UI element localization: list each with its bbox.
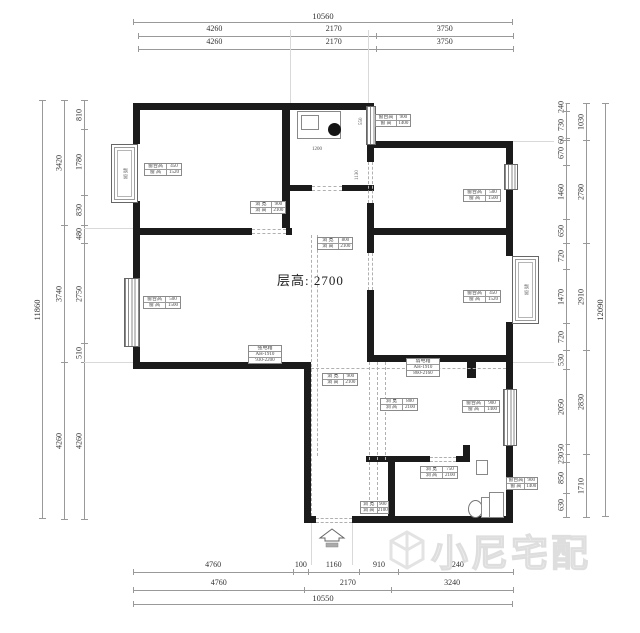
dim-segment: 2780: [574, 141, 587, 243]
wall: [367, 141, 513, 148]
floor-plan-canvas: 10560 426021703750 426021703750 47601001…: [0, 0, 640, 633]
dim-value: 4260: [74, 432, 83, 450]
dim-total-bottom: 10550: [133, 593, 513, 605]
annotation-cell: 洞 宽: [381, 399, 402, 404]
annotation-cell: 窗 高: [144, 303, 165, 308]
dim-value: 630: [556, 498, 565, 512]
dim-segment: 2910: [574, 243, 587, 350]
window: [124, 278, 140, 347]
dim-segment: 4760: [133, 578, 304, 591]
dim-value: 650: [556, 224, 565, 238]
annotation-box: 弱电箱AH-1910860-2160: [406, 358, 440, 377]
dim-segment: 2170: [304, 578, 391, 591]
annotation-cell: 2100: [377, 508, 388, 513]
dim-value: 720: [556, 249, 565, 263]
annotation-box: 强电箱AH-1910930-2200: [248, 345, 282, 364]
extension-line: [368, 30, 369, 103]
annotation-cell: 洞 宽: [251, 202, 271, 207]
dim-value: 10560: [312, 11, 333, 21]
bay-window-label: 飘窗: [121, 168, 128, 180]
wall: [133, 228, 252, 235]
dim-segment: 3240: [391, 578, 513, 591]
dim-value: 4260: [138, 24, 291, 34]
dim-segment: 510: [72, 344, 85, 363]
wall: [133, 103, 374, 110]
annotation-row: 洞 高2100: [251, 207, 285, 213]
dim-value: 810: [74, 108, 83, 122]
annotation-row: 窗 高1400: [507, 483, 537, 489]
dashed-line: [369, 362, 370, 500]
annotation-row: 窗台高500: [144, 297, 180, 302]
dim-value: 510: [74, 346, 83, 360]
annotation-cell: 窗 高: [464, 196, 485, 201]
annotation-cell: 弱电箱: [407, 359, 439, 364]
door-opening-dash: [430, 457, 456, 458]
annotation-cell: 1400: [524, 484, 537, 489]
door-opening-dash: [316, 518, 352, 519]
annotation-cell: 强电箱: [249, 346, 281, 351]
dim-value: 2750: [74, 285, 83, 303]
door-opening-dash: [368, 162, 369, 203]
wall: [304, 362, 311, 523]
interior-dim: 550: [359, 118, 364, 126]
dim-value: 1030: [576, 113, 585, 131]
annotation-cell: 窗台高: [144, 297, 165, 302]
wall: [374, 228, 513, 235]
annotation-box: 洞 宽900洞 高2100: [322, 373, 358, 386]
dim-value: 11860: [32, 297, 42, 322]
wall: [456, 456, 463, 462]
floor-height-label: 层高: 2700: [277, 270, 344, 289]
annotation-row: 弱电箱: [407, 359, 439, 364]
annotation-cell: 窗 高: [145, 170, 166, 175]
dim-value: 2910: [576, 288, 585, 306]
dim-total-right: 12090: [593, 103, 606, 517]
wash-basin: [476, 460, 488, 475]
annotation-row: 洞 高2100: [318, 243, 352, 249]
flue-shaft: [328, 123, 341, 136]
annotation-cell: AH-1910: [249, 352, 281, 357]
annotation-cell: 洞 高: [361, 508, 377, 513]
dim-value: 4760: [133, 560, 293, 570]
annotation-cell: 900: [271, 202, 285, 207]
dashed-line: [317, 235, 318, 456]
dim-segment: 100: [293, 560, 308, 573]
annotation-cell: 窗台高: [507, 478, 524, 483]
annotation-row: 860-2160: [407, 370, 439, 376]
annotation-row: AH-1910: [249, 351, 281, 357]
dim-segment: 850: [554, 463, 567, 494]
dim-segment: 2170: [291, 37, 377, 50]
wall: [288, 185, 312, 191]
annotation-row: 窗台高900: [463, 401, 499, 406]
annotation-cell: 1520: [166, 170, 181, 175]
dim-chain-bottom-1: 476010011609103240: [133, 560, 513, 572]
annotation-cell: 窗 高: [463, 407, 484, 412]
dim-value: 3750: [377, 24, 513, 34]
bay-window: 飘窗: [512, 256, 539, 324]
annotation-cell: 洞 高: [318, 244, 338, 249]
door-opening-dash: [372, 162, 373, 203]
annotation-cell: 900: [524, 478, 537, 483]
dim-value: 3750: [377, 37, 513, 47]
dim-value: 830: [74, 203, 83, 217]
annotation-row: 窗 高1520: [464, 296, 500, 302]
dim-segment: 4260: [72, 363, 85, 519]
dim-segment: 4760: [133, 560, 293, 573]
extension-line: [513, 362, 554, 363]
annotation-cell: 洞 宽: [421, 467, 442, 472]
annotation-row: 窗台高450: [145, 164, 181, 169]
door-opening-dash: [316, 522, 352, 523]
annotation-row: 窗台高900: [376, 115, 410, 120]
wall: [286, 228, 292, 235]
dim-value: 4260: [54, 432, 63, 450]
annotation-cell: 洞 高: [421, 473, 442, 478]
annotation-cell: 900: [343, 374, 357, 379]
dim-chain-top-2: 426021703750: [138, 24, 513, 36]
wall: [506, 141, 513, 164]
interior-dim: 1130: [355, 170, 360, 180]
annotation-row: 窗 高1520: [145, 169, 181, 175]
entrance-marker: [318, 527, 346, 554]
annotation-row: 洞 高2100: [361, 507, 388, 513]
bay-window: 飘窗: [111, 144, 138, 203]
annotation-box: 窗台高900窗 高1400: [375, 114, 411, 127]
wall: [367, 203, 374, 253]
wall: [463, 445, 470, 462]
dim-segment: 2050: [554, 370, 567, 445]
wall: [133, 201, 140, 278]
annotation-row: 窗 高1400: [463, 406, 499, 412]
door-opening-dash: [368, 253, 369, 290]
dim-value: 2170: [304, 578, 391, 588]
dim-chain-top-3: 426021703750: [138, 37, 513, 49]
dim-segment: 3750: [377, 24, 513, 37]
dim-value: 12090: [595, 297, 605, 322]
annotation-cell: 1520: [485, 297, 500, 302]
dim-value: 1460: [556, 183, 565, 201]
wall: [367, 148, 374, 162]
dim-value: 3420: [54, 154, 63, 172]
dim-segment: 2170: [291, 24, 377, 37]
annotation-cell: 洞 宽: [361, 502, 377, 507]
dim-chain-left-mid: 342037404260: [52, 100, 64, 519]
dim-segment: 1030: [574, 103, 587, 141]
dim-segment: 1710: [574, 454, 587, 517]
dim-segment: 2750: [72, 243, 85, 344]
annotation-cell: 1400: [396, 121, 410, 126]
annotation-cell: 2100: [402, 405, 417, 410]
extension-line: [290, 30, 291, 103]
dim-segment: 4260: [52, 363, 65, 519]
annotation-cell: 500: [165, 297, 180, 302]
bay-window-label: 飘窗: [522, 284, 529, 296]
extension-line: [311, 523, 312, 565]
annotation-cell: 洞 高: [251, 208, 271, 213]
dim-value: 4760: [133, 578, 304, 588]
annotation-cell: 2100: [343, 380, 357, 385]
dim-value: 1780: [74, 153, 83, 171]
dim-value: 2780: [576, 183, 585, 201]
annotation-row: 洞 高2100: [421, 472, 457, 478]
annotation-cell: 800: [338, 238, 352, 243]
door-opening-dash: [372, 253, 373, 290]
dashed-line: [385, 362, 386, 460]
dim-chain-left-inner: 810178083048027505104260: [72, 100, 84, 519]
door-opening-dash: [312, 186, 342, 187]
annotation-cell: 930-2200: [249, 358, 281, 363]
door-opening-dash: [312, 190, 342, 191]
dim-chain-right-inner: 2407306067014606507201470720530205025023…: [554, 103, 566, 517]
wall: [374, 355, 513, 362]
annotation-box: 洞 宽750洞 高2100: [420, 466, 458, 479]
annotation-box: 洞 宽800洞 高2100: [317, 237, 353, 250]
annotation-cell: 洞 宽: [318, 238, 338, 243]
dim-segment: 650: [554, 219, 567, 243]
annotation-row: 窗台高500: [464, 190, 500, 195]
annotation-box: 窗台高450窗 高1520: [463, 290, 501, 303]
annotation-row: 窗 高1400: [376, 120, 410, 126]
dim-value: 4260: [138, 37, 291, 47]
dim-total-top: 10560: [133, 11, 513, 23]
dim-segment: 1470: [554, 270, 567, 324]
dim-chain-right-mid: 10302780291028301710: [574, 103, 586, 517]
annotation-cell: AH-1910: [407, 365, 439, 370]
window: [503, 389, 517, 446]
dim-segment: 720: [554, 243, 567, 269]
dim-total-left: 11860: [30, 100, 43, 519]
dashed-line: [377, 362, 378, 500]
annotation-box: 洞 宽900洞 高2100: [360, 501, 389, 514]
dim-value: 480: [74, 227, 83, 241]
annotation-row: 洞 高2100: [323, 379, 357, 385]
interior-dim: 1200: [312, 147, 322, 152]
dim-segment: 910: [359, 560, 399, 573]
annotation-box: 窗台高450窗 高1520: [144, 163, 182, 176]
annotation-cell: 窗台高: [464, 190, 485, 195]
annotation-cell: 750: [442, 467, 457, 472]
annotation-box: 洞 宽900洞 高2100: [250, 201, 286, 214]
dim-segment: 830: [72, 195, 85, 225]
extension-line: [84, 362, 133, 363]
dim-value: 1710: [576, 477, 585, 495]
dim-segment: 3750: [377, 37, 513, 50]
annotation-cell: 450: [485, 291, 500, 296]
annotation-row: 窗 高1500: [464, 195, 500, 201]
dim-value: 100: [293, 560, 308, 570]
dim-segment: 810: [72, 100, 85, 130]
annotation-cell: 窗台高: [463, 401, 484, 406]
annotation-cell: 1400: [484, 407, 499, 412]
entrance-icon: [318, 527, 346, 549]
annotation-cell: 窗台高: [376, 115, 396, 120]
annotation-cell: 洞 高: [381, 405, 402, 410]
window: [504, 164, 518, 190]
annotation-cell: 2100: [442, 473, 457, 478]
annotation-box: 窗台高900窗 高1400: [506, 477, 538, 490]
annotation-cell: 窗 高: [464, 297, 485, 302]
annotation-box: 窗台高900窗 高1400: [462, 400, 500, 413]
dim-value: 2830: [576, 393, 585, 411]
wall: [366, 456, 430, 462]
annotation-cell: 窗 高: [507, 484, 524, 489]
annotation-cell: 900: [396, 115, 410, 120]
annotation-cell: 1500: [485, 196, 500, 201]
extension-line: [84, 228, 133, 229]
annotation-row: 洞 宽900: [323, 374, 357, 379]
dim-value: 720: [556, 330, 565, 344]
annotation-cell: 2100: [271, 208, 285, 213]
dim-segment: 530: [554, 350, 567, 369]
dim-value: 2170: [291, 37, 377, 47]
annotation-row: 窗台高450: [464, 291, 500, 296]
dim-segment: 670: [554, 141, 567, 166]
annotation-row: AH-1910: [407, 364, 439, 370]
annotation-cell: 1500: [165, 303, 180, 308]
wall: [133, 362, 311, 369]
dim-value: 2170: [291, 24, 377, 34]
dim-value: 850: [556, 471, 565, 485]
dim-value: 10550: [312, 593, 333, 603]
dim-value: 3240: [399, 560, 513, 570]
dim-value: 910: [359, 560, 399, 570]
annotation-cell: 860-2160: [407, 371, 439, 376]
annotation-cell: 500: [485, 190, 500, 195]
dim-segment: 1780: [72, 130, 85, 195]
door-opening-dash: [430, 461, 456, 462]
annotation-cell: 800: [402, 399, 417, 404]
annotation-row: 洞 宽750: [421, 467, 457, 472]
annotation-box: 窗台高500窗 高1500: [143, 296, 181, 309]
annotation-cell: 窗台高: [464, 291, 485, 296]
annotation-cell: 900: [484, 401, 499, 406]
wall: [388, 462, 395, 516]
dim-segment: 3420: [52, 100, 65, 225]
wall: [133, 103, 140, 144]
wall: [506, 188, 513, 256]
dim-value: 730: [556, 118, 565, 132]
dim-segment: 3240: [399, 560, 513, 573]
dim-segment: 630: [554, 494, 567, 517]
wall: [342, 185, 374, 191]
annotation-row: 窗台高900: [507, 478, 537, 483]
annotation-row: 洞 宽900: [251, 202, 285, 207]
annotation-cell: 900: [377, 502, 388, 507]
annotation-cell: 洞 高: [323, 380, 343, 385]
wall: [467, 362, 476, 378]
dim-chain-bottom-2: 476021703240: [133, 578, 513, 590]
extension-line: [352, 523, 353, 565]
dim-value: 3240: [391, 578, 513, 588]
annotation-cell: 2100: [338, 244, 352, 249]
dim-segment: 4260: [138, 37, 291, 50]
annotation-row: 洞 宽800: [318, 238, 352, 243]
door-opening-dash: [252, 229, 286, 230]
annotation-row: 窗 高1500: [144, 302, 180, 308]
wall: [304, 516, 316, 523]
dim-segment: 720: [554, 324, 567, 350]
dim-segment: 2830: [574, 350, 587, 454]
annotation-cell: 450: [166, 164, 181, 169]
dim-value: 530: [556, 353, 565, 367]
dim-value: 1470: [556, 288, 565, 306]
annotation-row: 洞 宽900: [361, 502, 388, 507]
dim-segment: 230: [554, 454, 567, 462]
wall: [367, 290, 374, 362]
kitchen-sink: [301, 115, 319, 130]
annotation-cell: 窗 高: [376, 121, 396, 126]
dim-segment: 4260: [138, 24, 291, 37]
dim-segment: 240: [554, 103, 567, 112]
dim-value: 670: [556, 146, 565, 160]
dim-value: 3740: [54, 285, 63, 303]
annotation-row: 洞 宽800: [381, 399, 417, 404]
annotation-cell: 洞 宽: [323, 374, 343, 379]
dim-value: 2050: [556, 398, 565, 416]
dim-segment: 1460: [554, 166, 567, 220]
dim-segment: 3740: [52, 225, 65, 362]
annotation-row: 强电箱: [249, 346, 281, 351]
annotation-row: 930-2200: [249, 357, 281, 363]
annotation-box: 窗台高500窗 高1500: [463, 189, 501, 202]
bath-fixture: [489, 492, 504, 518]
annotation-box: 洞 宽800洞 高2100: [380, 398, 418, 411]
door-opening-dash: [252, 233, 286, 234]
annotation-row: 洞 高2100: [381, 404, 417, 410]
extension-line: [513, 141, 554, 142]
annotation-cell: 窗台高: [145, 164, 166, 169]
